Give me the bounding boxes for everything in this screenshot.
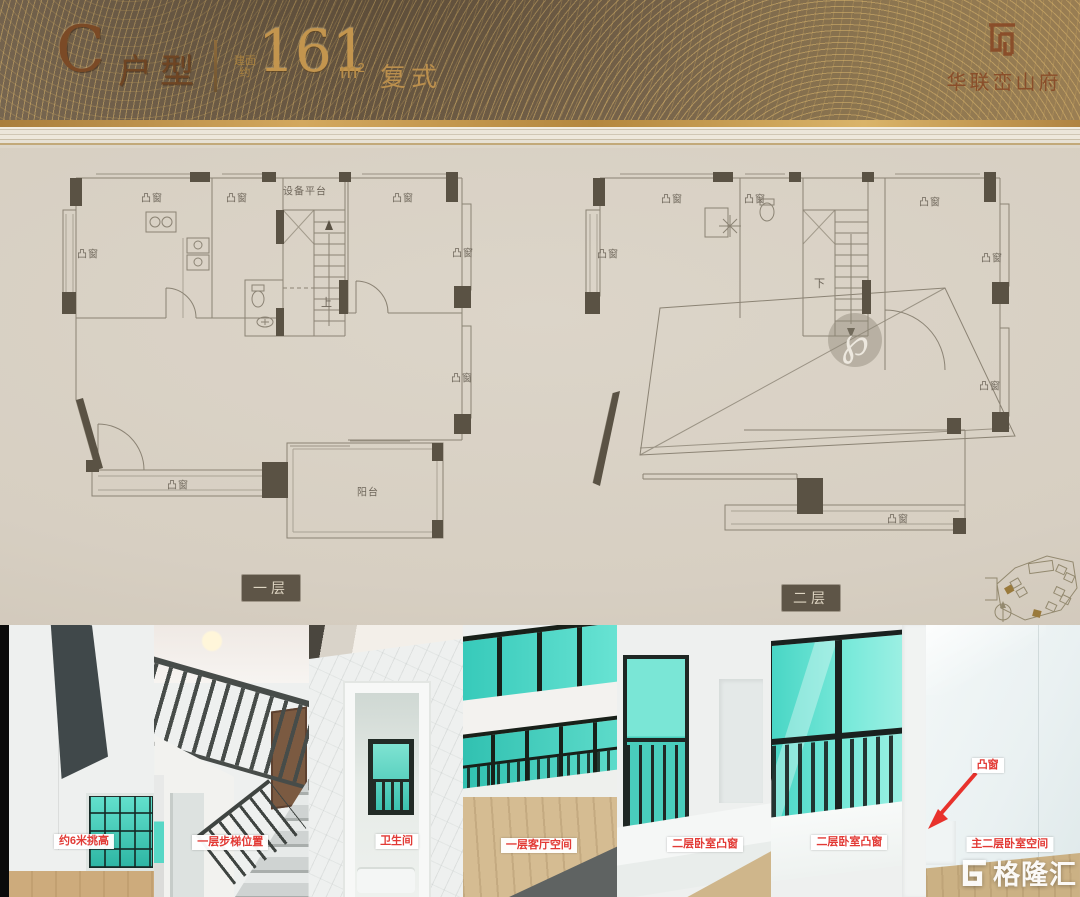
title-divider [214, 40, 217, 92]
bay-window-label: 凸窗 [392, 190, 414, 205]
bay-window-label: 凸窗 [141, 190, 163, 205]
unit-type-label: 户型 [118, 44, 202, 93]
photo-label: 二层卧室凸窗 [811, 835, 887, 850]
bay-window-label: 凸窗 [77, 246, 99, 261]
developer-stamp-icon: ℘ [828, 313, 882, 367]
photo-5-bedroom-bay-window: 二层卧室凸窗 [617, 625, 771, 897]
window-rail [627, 738, 685, 742]
photo-6-bedroom-bay-window: 二层卧室凸窗 [771, 625, 925, 897]
bay-window-label: 凸窗 [226, 190, 248, 205]
photo-label: 一层步梯位置 [192, 835, 268, 850]
bay-window-label: 凸窗 [167, 477, 189, 492]
plan1-structural-walls [62, 172, 471, 538]
photo-2-staircase: 一层步梯位置 [154, 625, 308, 897]
paper-stack-edge [0, 127, 1080, 148]
wood-floor [9, 871, 154, 897]
photo-strip: 约6米挑高 一层步梯位置 卫生 [0, 625, 1080, 897]
site-plan-diagram [985, 548, 1080, 626]
bathroom-interior [355, 693, 419, 897]
bay-window-label: 凸窗 [451, 370, 473, 385]
bathroom-doorway [345, 683, 429, 897]
photo-label: 卫生间 [375, 834, 418, 849]
plan2-walls [586, 174, 1015, 530]
stairs-up-label: 上 [321, 294, 333, 310]
bay-window-label: 凸窗 [661, 191, 683, 206]
photo-4-living-room: 一层客厅空间 [463, 625, 617, 897]
bay-window-label: 凸窗 [597, 246, 619, 261]
window-guard-bars [373, 779, 409, 810]
window-grid [89, 796, 153, 868]
bay-window [623, 655, 689, 835]
balcony-label: 阳台 [357, 484, 379, 499]
wall-corner-line [1038, 625, 1039, 857]
stamp-glyph: ℘ [841, 320, 869, 364]
gelonghui-text: 格隆汇 [993, 853, 1077, 892]
gelonghui-logo-icon [955, 856, 989, 890]
photo-label: 主二层卧室空间 [966, 837, 1053, 852]
wall-edge-line [58, 720, 59, 850]
bay-window-label: 凸窗 [979, 378, 1001, 393]
photo-label: 约6米挑高 [54, 834, 114, 849]
brand-monogram-icon [982, 20, 1022, 62]
bay-window-label: 凸窗 [981, 250, 1003, 265]
photo-label: 二层卧室凸窗 [667, 837, 743, 852]
area-prefix: 建面约 [230, 55, 260, 79]
ceiling-highlight [926, 625, 1046, 695]
equipment-platform-label: 设备平台 [283, 183, 327, 198]
wall-niche [719, 679, 763, 803]
black-edge-bar [0, 625, 9, 897]
floorplan-level1 [62, 168, 502, 578]
bathtub [357, 867, 415, 893]
gelonghui-watermark: 格隆汇 [955, 853, 1077, 892]
photo-label: 一层客厅空间 [501, 838, 577, 853]
side-window-sliver [154, 775, 164, 897]
brand-name: 华联峦山府 [926, 66, 1080, 95]
floorplan-level2: ℘ [585, 168, 1035, 578]
high-window-band [28, 625, 108, 779]
bay-window-label: 凸窗 [744, 191, 766, 206]
bathroom-window [368, 739, 414, 815]
page: C 户型 建面约 161 m² 复式 华联峦山府 [0, 0, 1080, 897]
stairs-down-label: 下 [814, 275, 826, 291]
right-wall [902, 625, 926, 897]
teal-window [86, 793, 154, 871]
bedroom-windows [771, 629, 913, 830]
bay-window-label: 凸窗 [452, 245, 474, 260]
photo-1-high-ceiling: 约6米挑高 [0, 625, 154, 897]
floor2-badge: 二层 [782, 585, 840, 611]
ceiling-edge [309, 625, 463, 659]
bay-window-label: 凸窗 [887, 511, 909, 526]
bay-window-callout: 凸窗 [972, 758, 1004, 773]
bay-window-label: 凸窗 [919, 194, 941, 209]
callout-arrow-icon [926, 765, 986, 835]
floor1-badge: 一层 [242, 575, 300, 601]
duplex-label: 复式 [380, 57, 442, 94]
unit-letter: C [56, 18, 105, 82]
area-unit: m² [340, 60, 365, 84]
photo-3-bathroom: 卫生间 [309, 625, 463, 897]
plan2-structural-walls [585, 172, 1009, 534]
